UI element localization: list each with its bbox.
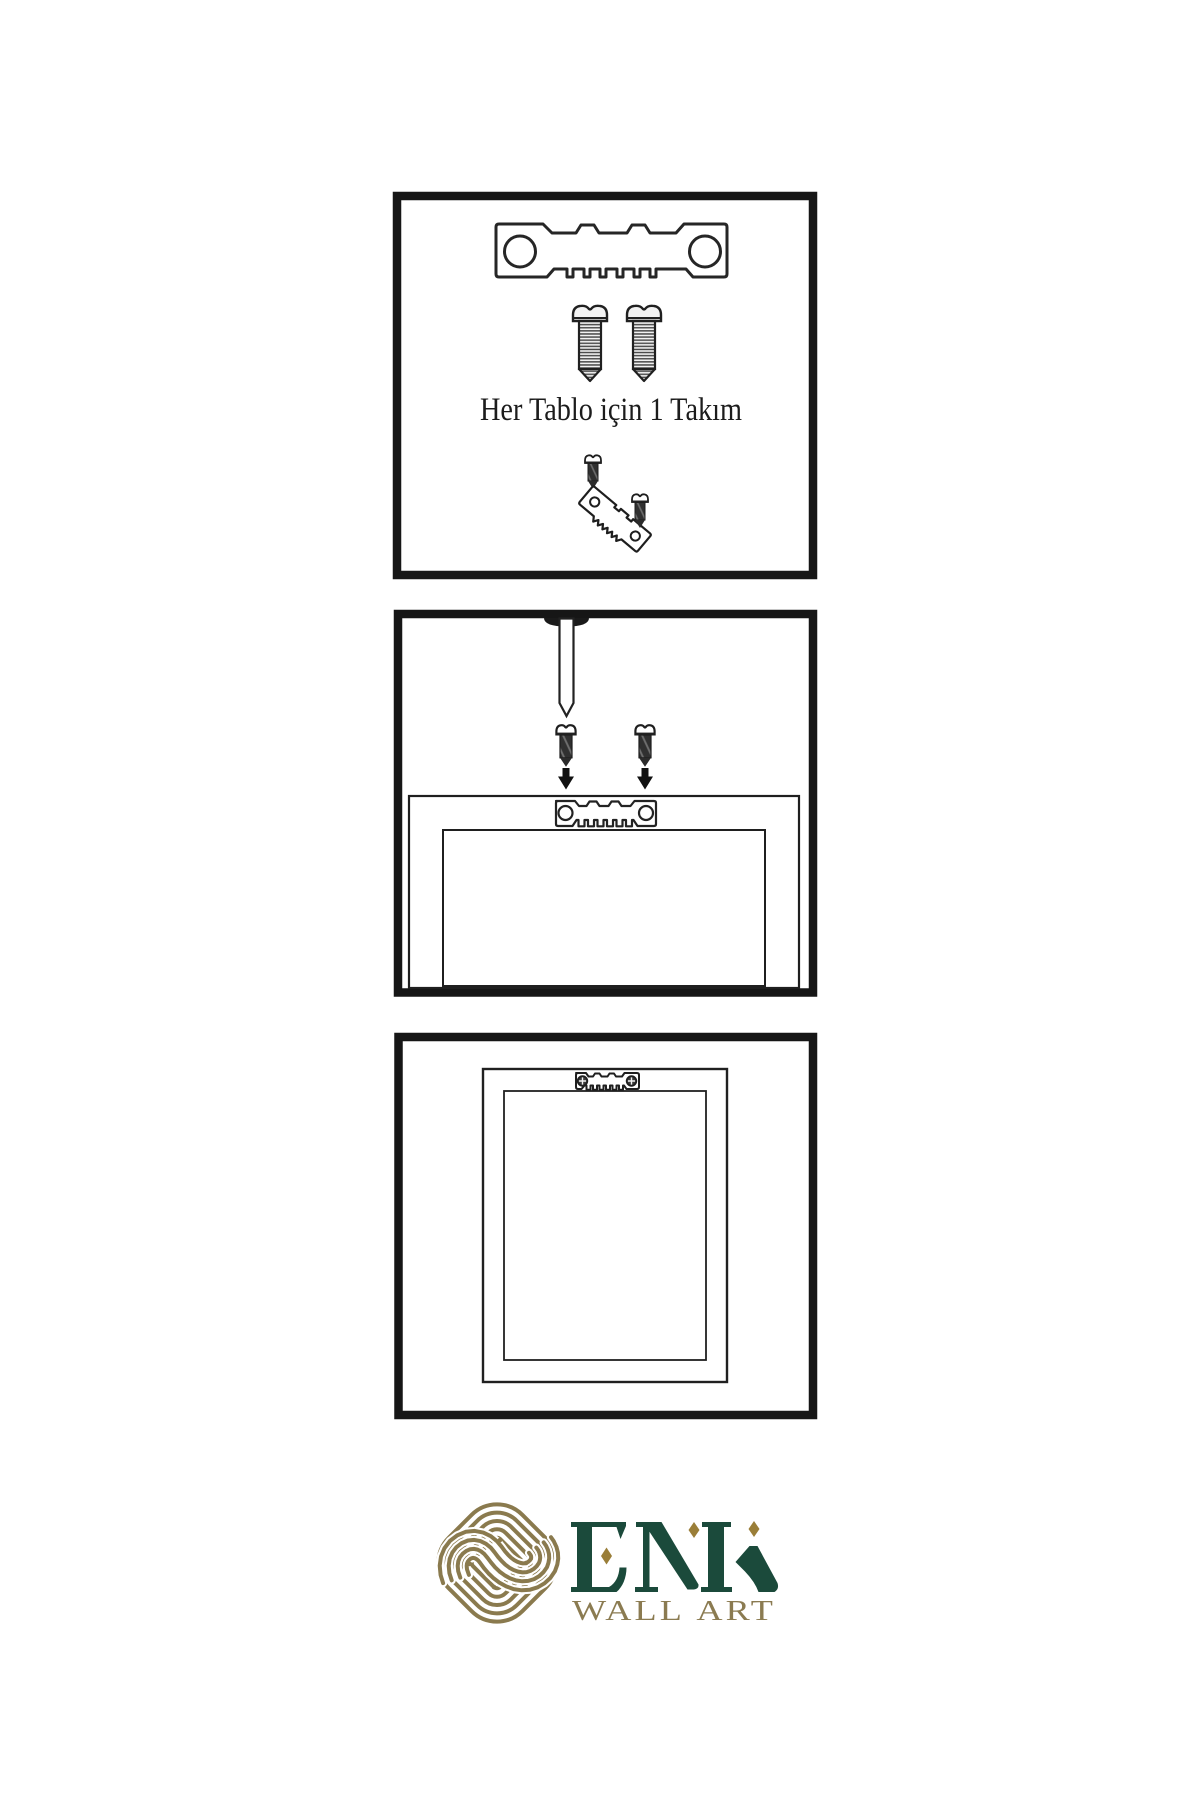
svg-text:Her Tablo için 1 Takım: Her Tablo için 1 Takım (480, 392, 742, 428)
svg-text:WALL ART: WALL ART (572, 1595, 776, 1627)
